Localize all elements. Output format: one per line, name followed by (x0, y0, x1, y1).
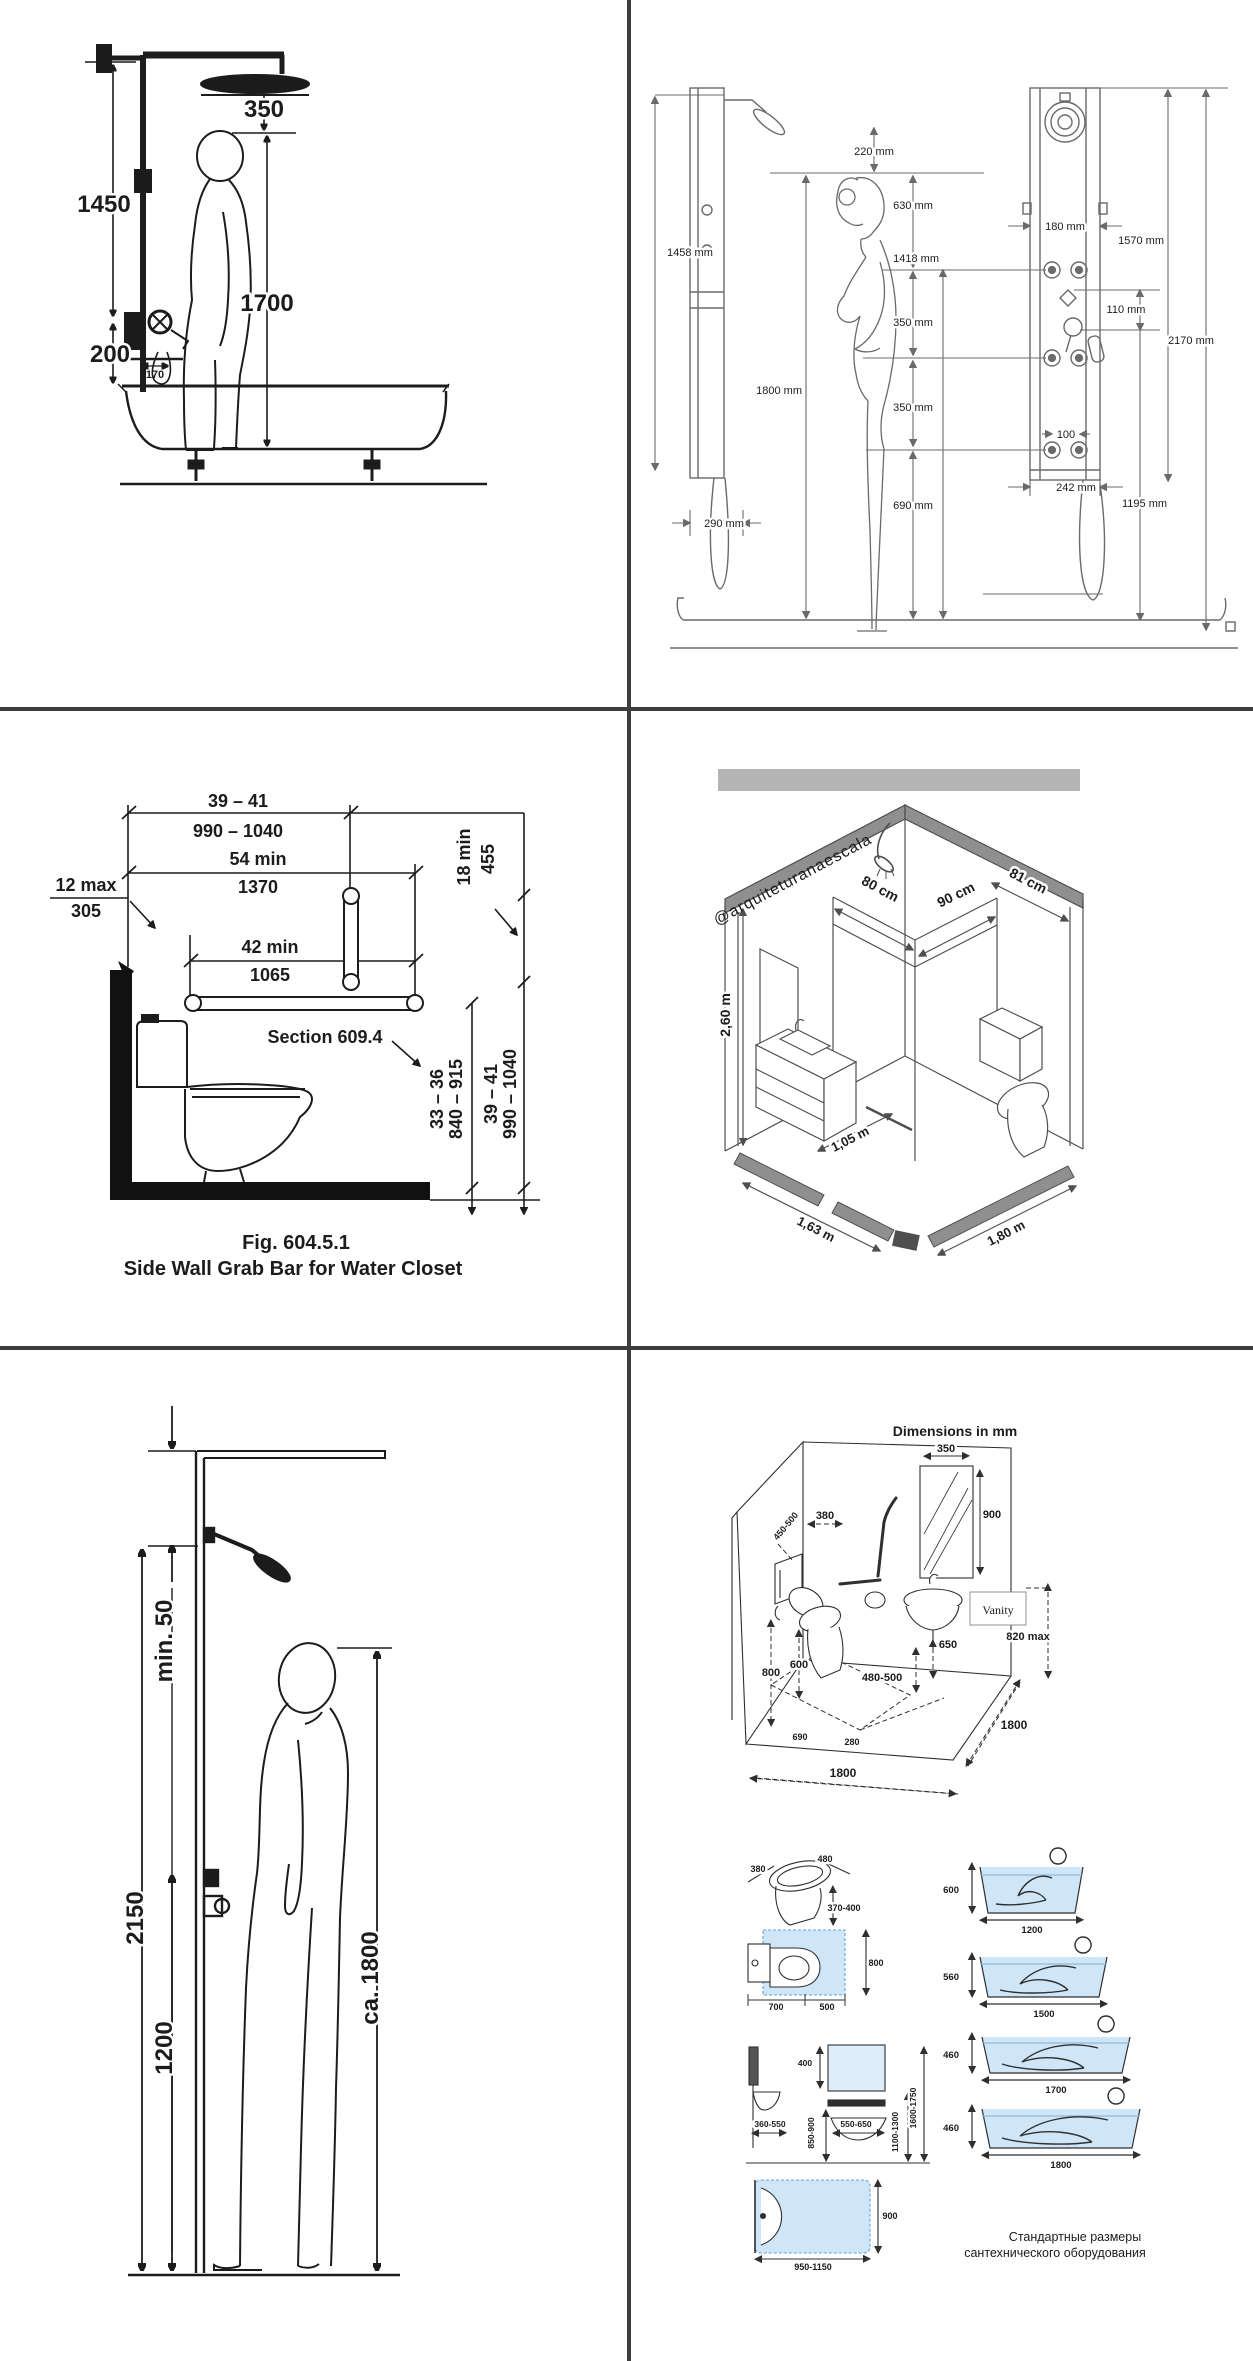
basin-views (746, 2045, 930, 2163)
tub2-height: 560 (943, 1972, 959, 1983)
room-650: 650 (939, 1639, 957, 1651)
diverter-knob (1060, 290, 1076, 306)
basin-1600-1750: 1600-1750 (908, 2087, 918, 2128)
dim-ca-1800: ca. 1800 (357, 1931, 384, 2024)
tub3-length: 1700 (1045, 2085, 1066, 2096)
man-silhouette (214, 1639, 348, 2270)
dim-1065: 1065 (250, 965, 290, 985)
horizontal-divider-2 (0, 1346, 1253, 1350)
room-820-max: 820 max (1006, 1631, 1050, 1643)
dim-163m: 1,63 m (795, 1213, 838, 1245)
vertical-divider (627, 0, 631, 2361)
tub-1700 (972, 2016, 1130, 2080)
grab-bar-icon (840, 1498, 896, 1584)
mirror-basin-vanity (904, 1466, 1026, 1650)
dim-990-1040-top: 990 – 1040 (193, 821, 283, 841)
dim-1450: 1450 (77, 191, 130, 218)
dim-290: 290 mm (704, 518, 744, 530)
mirror (920, 1466, 973, 1578)
dim-80cm: 80 cm (859, 872, 902, 905)
panel-accessible-bathroom-fixtures: Dimensions in mm (628, 1348, 1253, 2361)
dim-54-min: 54 min (229, 849, 286, 869)
caption-line1: Стандартные размеры (1009, 2230, 1141, 2244)
tub2-length: 1500 (1033, 2009, 1054, 2020)
dim-12-max: 12 max (55, 875, 116, 895)
panel-shower-column-woman: 1458 mm 290 mm 220 mm 630 mm 1418 mm 180… (628, 0, 1253, 709)
dim-110: 110 mm (1107, 304, 1146, 316)
tub3-height: 460 (943, 2050, 959, 2061)
dim-180m: 1,80 m (985, 1217, 1028, 1249)
basin-360-550: 360-550 (754, 2119, 785, 2129)
tub1-height: 600 (943, 1885, 959, 1896)
dim-840-915: 840 – 915 (446, 1059, 466, 1139)
shower-tray-plan (755, 2180, 878, 2259)
dim-242: 242 mm (1056, 482, 1096, 494)
dim-39-41-right: 39 – 41 (481, 1064, 501, 1124)
wc-views (748, 1856, 866, 2006)
dimension-lines (655, 88, 1228, 630)
bathtub-drawing (118, 384, 487, 484)
toilet-grabbar (775, 1498, 896, 1678)
dim-1700: 1700 (240, 290, 293, 317)
paper-roll-icon (865, 1592, 885, 1608)
dim-1370: 1370 (238, 877, 278, 897)
basin-1100-1300: 1100-1300 (890, 2112, 900, 2152)
shower-head-icon (251, 1550, 293, 1586)
dim-350-lower: 350 mm (893, 402, 933, 414)
dim-630: 630 mm (893, 200, 933, 212)
dim-min-50: min. 50 (151, 1600, 178, 1683)
mixer-knob (1064, 318, 1082, 336)
dim-1570: 1570 mm (1118, 235, 1164, 247)
wc-380: 380 (750, 1864, 765, 1874)
left-shower-unit (690, 88, 788, 589)
tub-1200 (972, 1848, 1083, 1920)
wc-800: 800 (868, 1958, 883, 1968)
toilet-iso (980, 1008, 1054, 1157)
dim-1200: 1200 (151, 2021, 178, 2074)
dim-18-min: 18 min (454, 828, 474, 885)
wc-500: 500 (819, 2002, 834, 2012)
valve (204, 1870, 229, 1916)
room-280: 280 (844, 1737, 859, 1747)
diagram-collage: 350 1450 1700 200 170 (0, 0, 1253, 2361)
room-600: 600 (790, 1659, 808, 1671)
dim-990-1040-right: 990 – 1040 (500, 1049, 520, 1139)
dim-690: 690 mm (893, 500, 933, 512)
dim-455: 455 (478, 844, 498, 874)
dim-42-min: 42 min (241, 937, 298, 957)
shower-head-icon (201, 75, 309, 93)
tub4-height: 460 (943, 2123, 959, 2134)
dim-1195: 1195 mm (1122, 498, 1167, 510)
dim-100: 100 (1057, 429, 1075, 441)
shower-tray (670, 598, 1238, 648)
tap-icon (930, 1574, 938, 1584)
tub-1500 (972, 1937, 1107, 2004)
dim-1418: 1418 mm (893, 253, 939, 265)
panel-shower-height-man: min. 50 2150 1200 ca. 1800 (0, 1348, 628, 2361)
left-shower-head-icon (750, 106, 787, 139)
dim-350: 350 (244, 96, 284, 123)
panel-shower-over-bathtub: 350 1450 1700 200 170 (0, 0, 628, 709)
right-shower-panel (1023, 88, 1107, 600)
wall-bracket (97, 45, 111, 72)
hose (710, 478, 728, 589)
dim-180: 180 mm (1045, 221, 1085, 233)
dim-2150: 2150 (122, 1891, 149, 1944)
room-480-500: 480-500 (862, 1672, 902, 1684)
panel-hose (1080, 480, 1105, 600)
dim-33-36: 33 – 36 (427, 1069, 447, 1129)
section-leader (392, 1041, 420, 1066)
panel-isometric-bathroom: @arquiteturanaescala 80 cm 90 cm 81 cm 2… (628, 709, 1253, 1348)
tub4-length: 1800 (1050, 2160, 1071, 2171)
dim-1800: 1800 mm (756, 385, 802, 397)
handshower-icon (1087, 335, 1105, 363)
grab-bars (185, 888, 423, 1011)
dim-170: 170 (146, 369, 164, 381)
wc-370-400: 370-400 (827, 1903, 860, 1913)
shower-950-1150: 950-1150 (794, 2262, 832, 2272)
wc-480: 480 (817, 1854, 832, 1864)
tub1-length: 1200 (1021, 1925, 1042, 1936)
dim-220: 220 mm (854, 146, 894, 158)
panel-title: Dimensions in mm (893, 1423, 1017, 1439)
horizontal-divider-1 (0, 707, 1253, 711)
dim-200: 200 (90, 341, 130, 368)
panel-grab-bar-water-closet: 39 – 41 990 – 1040 54 min 1370 12 max 30… (0, 709, 628, 1348)
room-350: 350 (937, 1443, 955, 1455)
bathtub-sizes (972, 1848, 1140, 2155)
vanity-cabinet (756, 949, 912, 1141)
room-800: 800 (762, 1667, 780, 1679)
floor-strips (734, 1153, 1074, 1250)
basin-550-650: 550-650 (840, 2119, 871, 2129)
figure-caption: Side Wall Grab Bar for Water Closet (124, 1258, 463, 1280)
vanity-label: Vanity (982, 1603, 1013, 1617)
room-450-500: 450-500 (771, 1510, 800, 1542)
russian-caption: Стандартные размеры сантехнического обор… (964, 2230, 1146, 2260)
room-380: 380 (816, 1510, 834, 1522)
room-1800-right: 1800 (1001, 1718, 1028, 1732)
dim-1458: 1458 mm (667, 247, 713, 259)
shower-900: 900 (882, 2211, 897, 2221)
top-gray-band (718, 769, 1080, 791)
dim-90cm: 90 cm (934, 879, 977, 911)
basin-850-900: 850-900 (806, 2117, 816, 2148)
watermark: @arquiteturanaescala (711, 831, 875, 929)
dim-2170: 2170 mm (1168, 335, 1214, 347)
dim-39-41-top: 39 – 41 (208, 791, 268, 811)
dim-305: 305 (71, 901, 101, 921)
dim-260m: 2,60 m (717, 993, 733, 1037)
woman-silhouette (837, 178, 896, 631)
dim-350-upper: 350 mm (893, 317, 933, 329)
room-690: 690 (792, 1732, 807, 1742)
figure-number: Fig. 604.5.1 (242, 1232, 350, 1254)
shower-wall-drawing (128, 1451, 400, 2275)
basin-400: 400 (798, 2058, 812, 2068)
room-900: 900 (983, 1509, 1001, 1521)
section-label: Section 609.4 (267, 1027, 382, 1047)
dimension-lines (142, 1406, 392, 2270)
caption-line2: сантехнического оборудования (964, 2246, 1146, 2260)
tub-1800 (972, 2088, 1140, 2155)
wc-700: 700 (768, 2002, 783, 2012)
room-1800-front: 1800 (830, 1766, 857, 1780)
